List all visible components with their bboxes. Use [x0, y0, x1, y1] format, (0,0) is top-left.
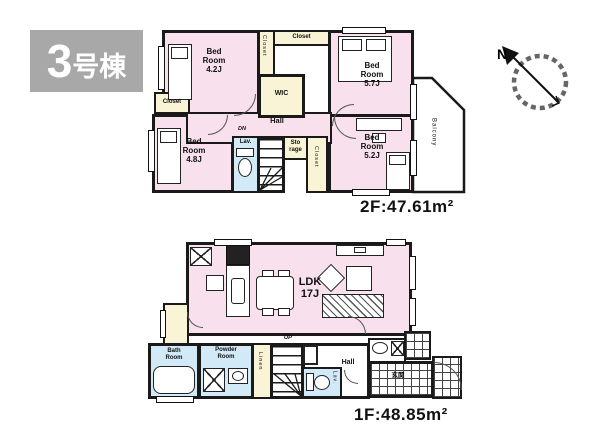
f1-toilet-tank — [306, 373, 314, 391]
f2-desk-se — [356, 118, 402, 131]
f1-washer-space — [203, 368, 225, 392]
f2-closet-sw-label: Closet — [156, 99, 188, 106]
f2-closet-vertical-label: Closet — [261, 35, 267, 57]
f1-bath-label: Bath Room — [152, 348, 196, 361]
f1-up-label: UP — [280, 335, 296, 342]
f1-stairs-fan — [271, 371, 303, 398]
f1-side-table — [346, 266, 372, 291]
badge-suffix: 号棟 — [72, 54, 126, 81]
f2-stairs-fan — [258, 164, 284, 192]
f2-toilet-bowl — [238, 158, 252, 177]
f1-bathtub — [153, 366, 195, 394]
f2-balcony — [410, 72, 470, 196]
f1-linen-label: Linen — [257, 352, 263, 370]
f2-bedroom-nw-label: Bed Room 4.2J — [186, 48, 242, 75]
f1-shoe-closet — [404, 331, 431, 360]
f2-area-label: 2F:47.61m² — [360, 197, 454, 217]
f2-window-sw — [148, 130, 155, 172]
f2-wic-label: WIC — [258, 90, 305, 98]
f1-stove — [226, 245, 250, 265]
f2-balcony-outline — [413, 78, 464, 192]
f1-kitchen-cart — [206, 275, 224, 291]
f2-dn-label: DN — [234, 126, 250, 132]
f1-powder-label: Powder Room — [204, 347, 248, 360]
f1-powder-basin-bowl — [232, 371, 244, 381]
f2-window-ne-top — [342, 27, 386, 34]
compass-north-label: N — [497, 46, 507, 62]
f2-balcony-label: Balcony — [430, 118, 437, 146]
f1-lav-label: Lav. — [331, 371, 337, 384]
f1-window-niche — [160, 310, 166, 338]
building-badge: 3 号棟 — [30, 30, 143, 92]
compass-needle — [508, 52, 559, 103]
f1-hall-label: Hall — [334, 359, 362, 367]
f2-lav-label: Lav. — [234, 139, 257, 146]
compass: N — [496, 42, 580, 122]
f2-window-ne-balcony — [410, 84, 417, 120]
badge-number: 3 — [47, 38, 73, 84]
f2-window-se-balcony — [410, 140, 417, 176]
f1-vanity-basin — [372, 342, 388, 354]
f1-pantry-niche — [163, 303, 189, 347]
f2-bedroom-sw-label: Bed Room 4.8J — [166, 138, 222, 165]
f2-window-se-bottom — [352, 189, 390, 196]
f2-bedroom-ne-label: Bed Room 5.7J — [344, 62, 400, 89]
f1-area-label: 1F:48.85m² — [354, 405, 448, 425]
f1-toilet-bowl — [314, 375, 330, 390]
f2-bed-ne-pillow-left — [342, 39, 362, 51]
f1-entrance-genkan — [368, 361, 434, 398]
f1-fridge-space — [190, 247, 212, 266]
f2-bed-ne-pillow-right — [366, 39, 386, 51]
f2-hall-label: Hall — [262, 117, 292, 125]
f1-vanity-x — [391, 341, 404, 356]
f2-window-nw — [158, 46, 165, 90]
f1-window-top-right — [386, 239, 406, 246]
f1-hall-cabinet — [303, 345, 318, 365]
f1-entrance-label: 玄関 — [386, 372, 410, 379]
f2-closet-horizontal-label: Closet — [276, 34, 327, 41]
f1-window-right-lower — [409, 298, 416, 326]
f1-window-top-left — [214, 239, 252, 246]
f2-bedroom-se-label: Bed Room 5.2J — [344, 134, 400, 161]
f1-chair-bottom-left — [262, 308, 274, 316]
f1-kitchen-sink — [231, 278, 245, 304]
floorplan-canvas: 3 号棟 N Balcony — [0, 0, 600, 439]
f2-storage-label: Sto rage — [284, 140, 307, 153]
f1-ldk-label: LDK 17J — [288, 276, 332, 301]
f1-chair-bottom-right — [278, 308, 290, 316]
f1-window-right-upper — [409, 256, 416, 290]
f2-toilet-tank — [236, 148, 254, 157]
f2-closet-stairs-label: Closet — [313, 146, 319, 168]
f1-window-bath — [156, 396, 194, 403]
f1-tv — [354, 247, 366, 253]
